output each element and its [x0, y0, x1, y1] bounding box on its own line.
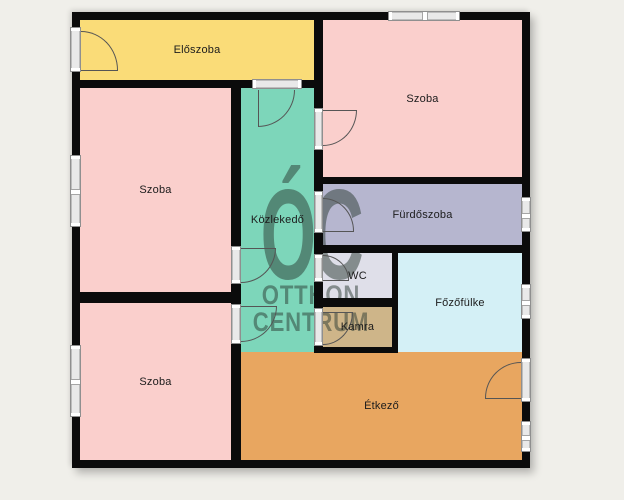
floor-plan-canvas: ÓC OTTHON CENTRUM — [0, 0, 624, 500]
wall-wc-kamra — [323, 298, 392, 307]
door-leaf-furdoszoba — [323, 231, 354, 232]
door-frame-wc — [314, 254, 323, 282]
door-frame-kamra — [314, 308, 323, 346]
wall-kamra-bottom — [314, 347, 398, 353]
door-leaf-entry — [81, 70, 118, 71]
wall-between-szoba-left — [72, 292, 241, 303]
door-frame-etkezo-balcony — [521, 358, 531, 402]
room-szoba-middle-left — [80, 88, 231, 292]
window-etkezo — [521, 421, 531, 452]
door-leaf-etkezo-balcony — [485, 398, 521, 399]
room-szoba-bottom-left — [80, 303, 231, 460]
room-furdoszoba — [323, 184, 522, 245]
window-szoba-bottom-left — [70, 345, 81, 417]
door-frame-szoba-bottom-left — [231, 304, 241, 344]
wall-szoba-furdoszoba — [314, 177, 522, 184]
wall-corridor-right — [314, 20, 323, 353]
room-szoba-top-right — [323, 20, 522, 177]
window-fozofulke — [521, 284, 531, 319]
door-frame-furdoszoba — [314, 191, 323, 233]
door-frame-entry — [70, 27, 81, 72]
window-szoba-middle-left — [70, 155, 81, 227]
wall-outer-top — [72, 12, 530, 20]
door-frame-szoba-middle-left — [231, 246, 241, 284]
wall-outer-bottom — [72, 460, 530, 468]
room-eloszoba — [80, 20, 314, 80]
wall-furdoszoba-bottom — [314, 245, 522, 253]
window-furdoszoba — [521, 197, 531, 232]
door-frame-szoba-top-right — [314, 108, 323, 150]
door-frame-eloszoba-kozlekedo — [252, 79, 302, 89]
wall-wc-fozofulke — [392, 253, 398, 353]
door-leaf-wc — [323, 280, 349, 281]
room-fozofulke — [398, 253, 522, 352]
window-szoba-top-right — [388, 11, 460, 21]
room-etkezo — [241, 352, 522, 460]
